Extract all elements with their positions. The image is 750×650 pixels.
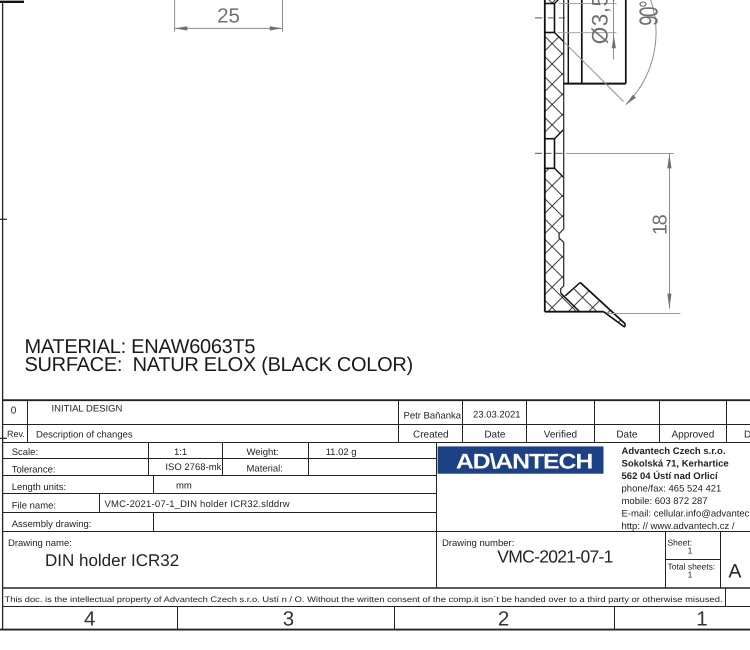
svg-text:Length units:: Length units: [12, 482, 66, 493]
svg-text:25: 25 [217, 5, 240, 28]
svg-text:Created: Created [413, 430, 449, 441]
svg-text:Description of changes: Description of changes [36, 430, 133, 441]
svg-text:DIN holder ICR32: DIN holder ICR32 [45, 551, 179, 570]
svg-text:Material:: Material: [247, 464, 283, 475]
svg-text:11.02 g: 11.02 g [326, 447, 357, 458]
svg-text:18: 18 [649, 214, 671, 235]
svg-text:1: 1 [688, 570, 693, 580]
svg-text:Scale:: Scale: [12, 447, 38, 458]
svg-text:1:1: 1:1 [174, 447, 187, 458]
svg-text:phone/fax: 465 524 421: phone/fax: 465 524 421 [622, 484, 722, 495]
svg-text:1: 1 [696, 608, 707, 631]
svg-text:Date: Date [616, 430, 638, 441]
svg-text:This doc. is the intellectual: This doc. is the intellectual property o… [5, 595, 723, 604]
svg-text:Weight:: Weight: [247, 447, 279, 458]
svg-text:Drawing name:: Drawing name: [8, 538, 72, 549]
svg-text:4: 4 [84, 608, 95, 631]
svg-text:Ø3,5: Ø3,5 [588, 0, 613, 44]
svg-text:1: 1 [688, 546, 693, 556]
svg-text:File name:: File name: [12, 501, 56, 512]
svg-text:Petr Baňanka: Petr Baňanka [404, 411, 462, 422]
svg-text:Tolerance:: Tolerance: [12, 465, 56, 476]
svg-text:Verified: Verified [544, 430, 577, 441]
svg-text:Sokolská 71, Kerhartice: Sokolská 71, Kerhartice [622, 459, 729, 470]
svg-text:0: 0 [11, 406, 17, 417]
svg-text:Approved: Approved [671, 430, 714, 441]
svg-text:mobile: 603 872 287: mobile: 603 872 287 [622, 496, 708, 507]
svg-text:AD\ANTECH: AD\ANTECH [456, 450, 592, 474]
svg-text:VMC-2021-07-1: VMC-2021-07-1 [497, 547, 612, 567]
svg-text:Assembly drawing:: Assembly drawing: [12, 519, 92, 530]
svg-text:INITIAL DESIGN: INITIAL DESIGN [52, 404, 123, 415]
svg-text:E-mail: cellular.info@advantec: E-mail: cellular.info@advantech.cz [622, 509, 750, 520]
svg-text:VMC-2021-07-1_DIN holder ICR32: VMC-2021-07-1_DIN holder ICR32.slddrw [105, 499, 290, 510]
svg-text:mm: mm [176, 481, 192, 492]
svg-text:Advantech Czech s.r.o.: Advantech Czech s.r.o. [622, 446, 726, 457]
svg-text:A: A [728, 561, 741, 583]
svg-text:23.03.2021: 23.03.2021 [473, 410, 521, 421]
svg-text:Date: Date [744, 430, 750, 441]
svg-text:http: // www.advantech.cz /: http: // www.advantech.cz / [622, 521, 735, 532]
svg-text:562 04 Ústí nad Orlicí: 562 04 Ústí nad Orlicí [622, 470, 718, 482]
svg-text:Rev.: Rev. [7, 429, 25, 439]
svg-text:90°: 90° [634, 1, 664, 25]
svg-text:2: 2 [498, 608, 509, 631]
svg-text:ISO 2768-mk: ISO 2768-mk [165, 462, 221, 473]
svg-text:3: 3 [283, 608, 294, 631]
svg-text:SURFACE: NATUR ELOX (BLACK CO: SURFACE: NATUR ELOX (BLACK COLOR) [25, 354, 413, 376]
svg-text:Date: Date [484, 430, 506, 441]
